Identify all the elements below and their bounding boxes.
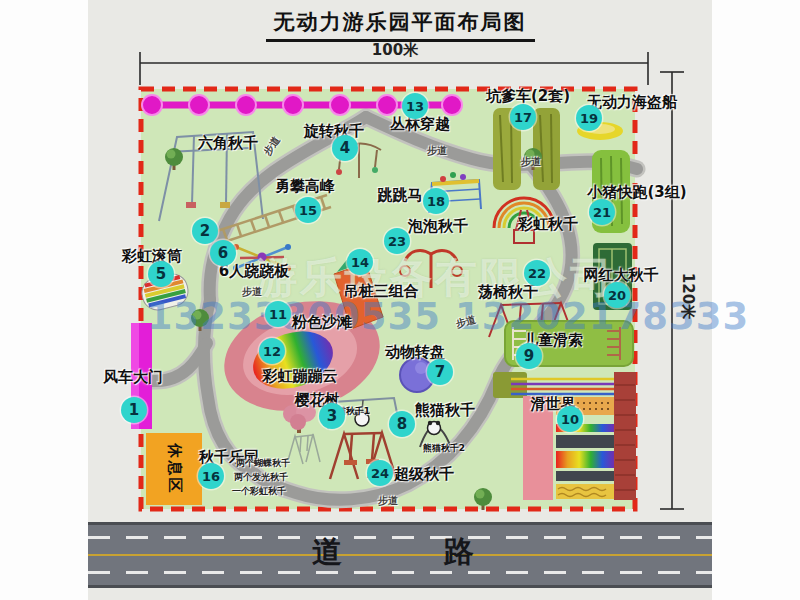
attraction-badge-23: 23	[384, 228, 410, 254]
attraction-badge-15: 15	[295, 197, 321, 223]
footpath-label: 步道	[427, 144, 447, 158]
attraction-label-22: 荡椅秋千	[478, 283, 538, 302]
attraction-badge-17: 17	[510, 104, 536, 130]
attraction-badge-19: 19	[576, 105, 602, 131]
attraction-label-11: 粉色沙滩	[292, 313, 352, 332]
attraction-badge-22: 22	[524, 260, 550, 286]
attraction-badge-18: 18	[423, 188, 449, 214]
attraction-badge-5: 5	[148, 261, 174, 287]
footpath-label: 步道	[242, 285, 262, 299]
attraction-label-24: 超级秋千	[394, 465, 454, 484]
attraction-badge-3: 3	[319, 403, 345, 429]
road-label: 道 路	[88, 532, 712, 573]
attraction-label-8: 熊猫秋千	[415, 401, 475, 420]
footpath-label: 步道	[378, 494, 398, 508]
attraction-label-18: 跳跳马	[378, 186, 423, 205]
attraction-badge-14: 14	[347, 249, 373, 275]
attraction-badge-12: 12	[259, 338, 285, 364]
attraction-badge-1: 1	[121, 397, 147, 423]
attraction-badge-7: 7	[427, 359, 453, 385]
map-label: 一个彩虹秋千	[232, 485, 286, 498]
road: 道 路	[88, 522, 712, 588]
attraction-badge-24: 24	[367, 460, 393, 486]
top-dimension-label: 100米	[372, 41, 418, 60]
attraction-label-15: 勇攀高峰	[275, 177, 335, 196]
screenshot-stage: 无动力游乐园平面布局图 100米 120米	[0, 0, 800, 600]
attraction-badge-2: 2	[192, 218, 218, 244]
attraction-badge-13: 13	[402, 93, 428, 119]
map-label: 两个蝴蝶秋千	[236, 457, 290, 470]
attraction-badge-8: 8	[389, 411, 415, 437]
attraction-label-14: 吊桩三组合	[344, 282, 419, 301]
attraction-label-12: 彩虹蹦蹦云	[263, 367, 338, 386]
map-label: 两个发光秋千	[234, 471, 288, 484]
attraction-badge-9: 9	[516, 343, 542, 369]
attraction-badge-16: 16	[198, 463, 224, 489]
footpath-label: 步道	[521, 155, 541, 169]
attraction-label-2: 六角秋千	[198, 134, 258, 153]
map-label: 熊猫秋千2	[423, 442, 465, 455]
watermark-phone: 13233800535 13202178333	[147, 295, 749, 338]
attraction-label-23: 泡泡秋千	[408, 217, 468, 236]
map-label: 彩虹秋千	[518, 215, 578, 234]
attraction-label-19: 无动力海盗船	[587, 93, 677, 112]
page-title: 无动力游乐园平面布局图	[266, 8, 535, 42]
attraction-badge-6: 6	[210, 240, 236, 266]
attraction-badge-4: 4	[332, 135, 358, 161]
rest-area-label: 休息区	[165, 444, 184, 495]
attraction-label-1: 风车大门	[103, 368, 163, 387]
attraction-badge-20: 20	[604, 282, 630, 308]
attraction-label-4: 旋转秋千	[304, 122, 364, 141]
right-dimension-label: 120米	[678, 273, 697, 319]
attraction-label-17: 坑爹车(2套)	[486, 87, 570, 106]
attraction-badge-11: 11	[265, 301, 291, 327]
attraction-badge-21: 21	[589, 199, 615, 225]
attraction-label-5: 彩虹滚筒	[122, 247, 182, 266]
attraction-badge-10: 10	[557, 406, 583, 432]
